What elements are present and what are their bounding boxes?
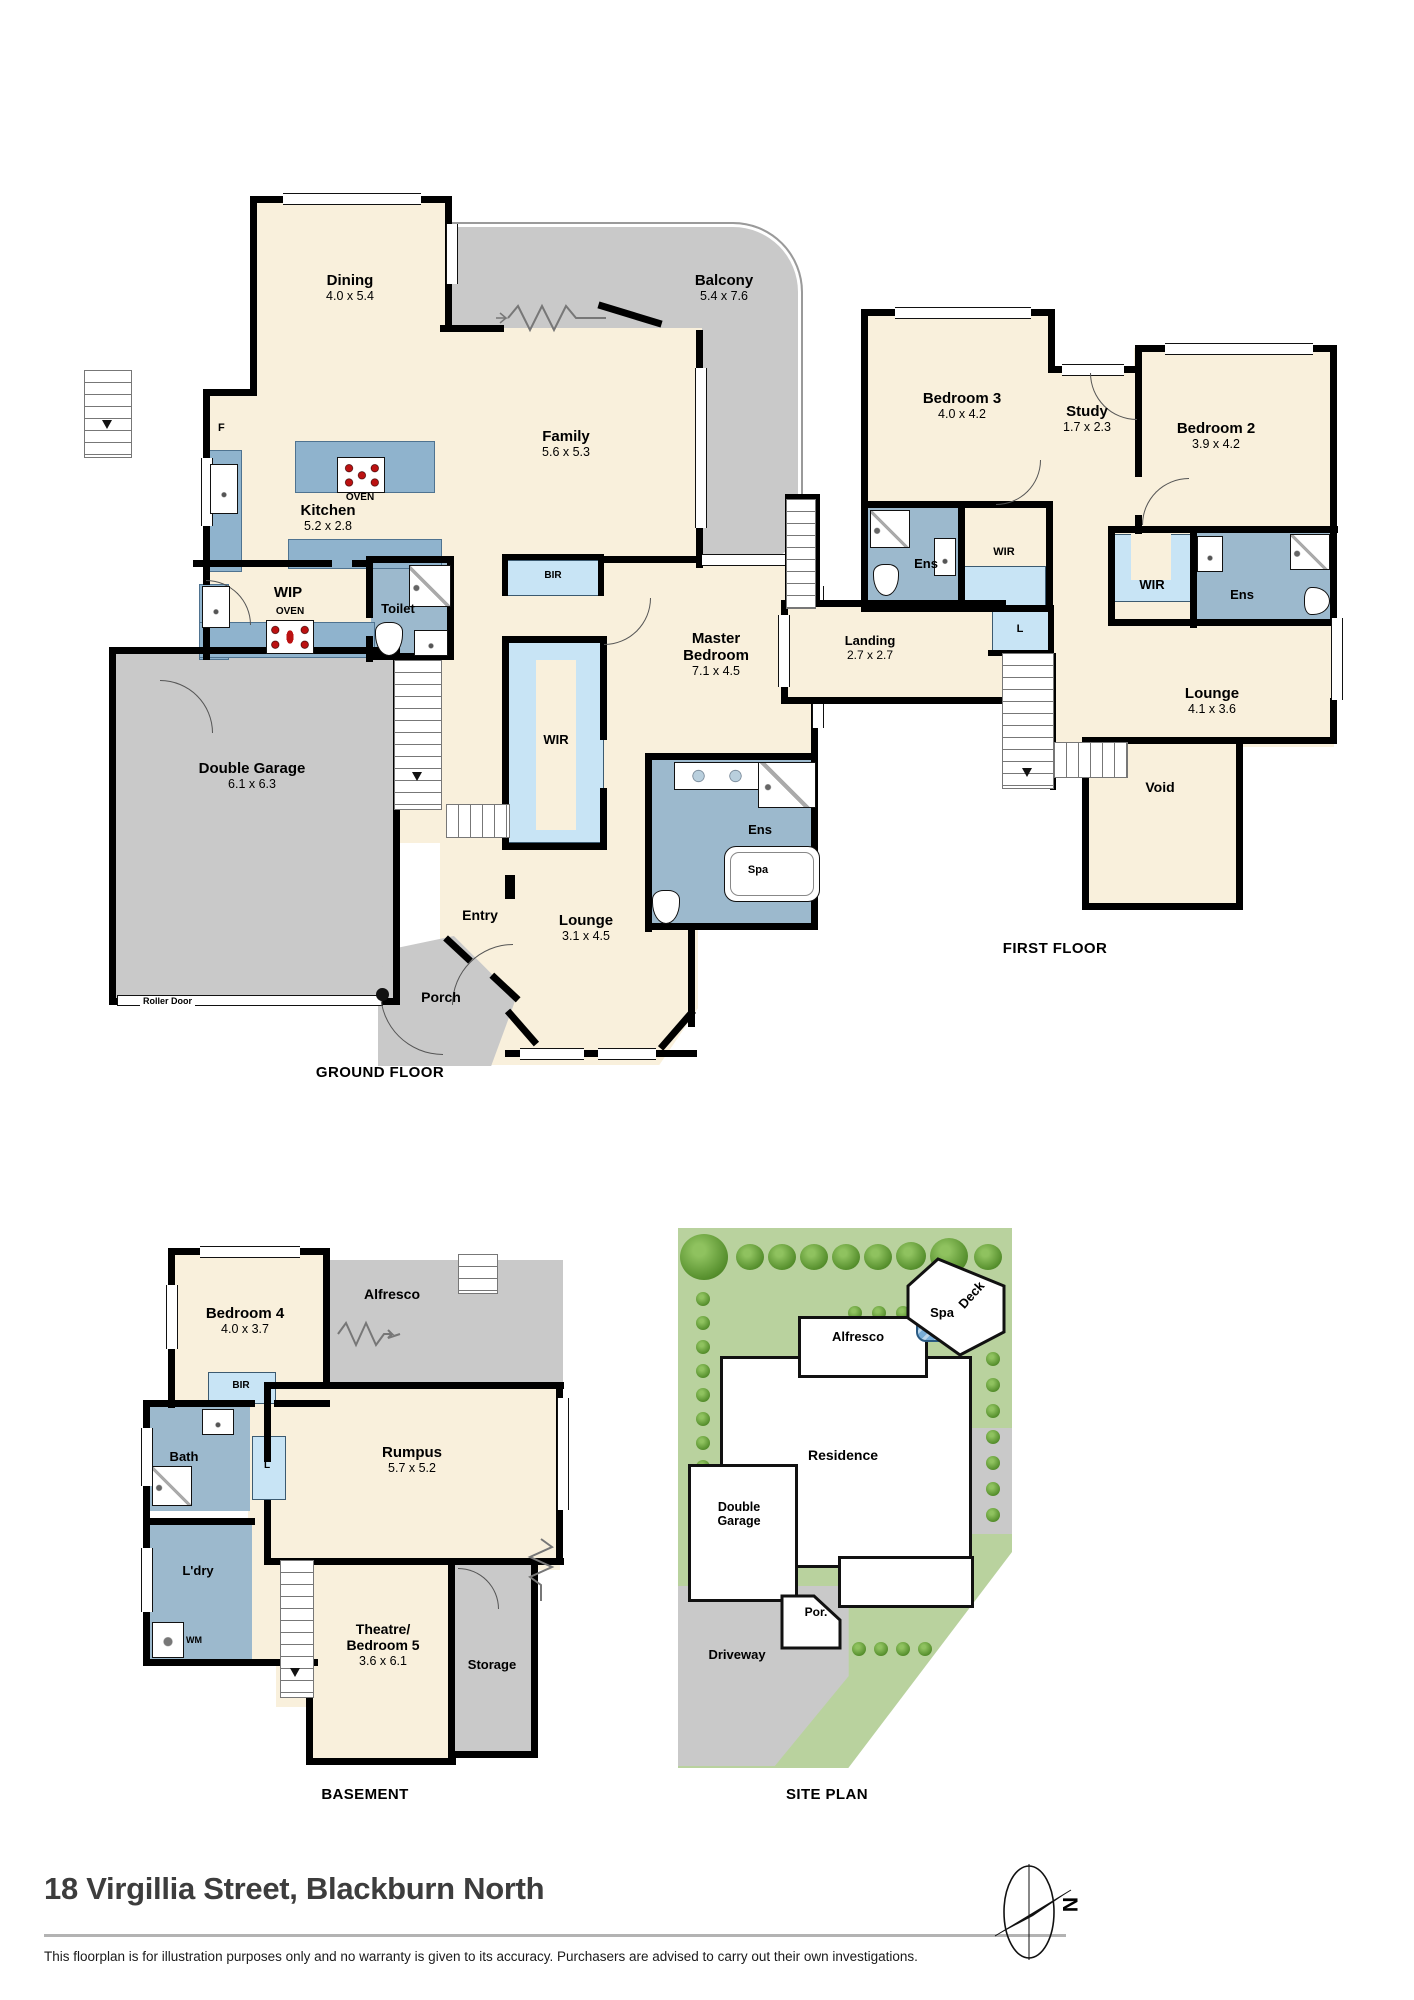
room-name: Lounge [1185,685,1239,702]
shower-icon [870,510,910,548]
floorplan-page: Dining4.0 x 5.4 Balcony5.4 x 7.6 Family5… [0,0,1414,2000]
robe-label: BIR [544,570,561,581]
room-dims: 3.1 x 4.5 [559,929,613,943]
room-name: Lounge [559,912,613,929]
shrub-icon [896,1642,910,1656]
porch-post-icon [376,988,389,1001]
fridge-label: F [218,422,225,434]
room-dims: 3.6 x 6.1 [331,1654,435,1668]
floor-area [268,1388,560,1570]
room-label-laundry: L'dry [182,1564,213,1579]
cooktop-icon [337,457,385,493]
window [557,1398,569,1510]
basin-icon [202,1409,234,1435]
room-name: Master Bedroom [661,630,771,664]
residence-outline [838,1556,974,1608]
room-label-void: Void [1145,780,1174,796]
spa-label: Spa [748,864,768,877]
room-label-lounge: Lounge4.1 x 3.6 [1185,685,1239,716]
room-label-porch: Porch [421,990,461,1006]
wall [502,636,607,643]
room-label-bedroom3: Bedroom 34.0 x 4.2 [923,390,1001,421]
room-name: Porch [421,990,461,1006]
wall [600,788,607,850]
plan-title-basement: BASEMENT [321,1786,408,1803]
wall [958,501,965,612]
opening-zigzag-icon [527,1537,555,1603]
shrub-icon [852,1642,866,1656]
room-name: Theatre/ Bedroom 5 [331,1622,435,1654]
shrub-icon [986,1378,1000,1392]
spa-label: Spa [930,1306,954,1321]
room-name: WIP [274,584,302,601]
wall [448,1558,536,1565]
wm-label: WM [186,1636,202,1646]
room-dims: 2.7 x 2.7 [845,649,896,663]
shower-icon [758,762,816,808]
tree-icon [832,1244,860,1270]
stairs [280,1560,314,1698]
wall [448,1558,455,1758]
wall [323,1248,330,1388]
arrow-down-icon [102,420,112,429]
wall [306,1758,456,1765]
disclaimer-text: This floorplan is for illustration purpo… [44,1950,918,1965]
tree-icon [736,1244,764,1270]
vanity-icon [674,762,760,790]
wall [600,636,607,740]
wall [352,560,373,567]
room-label-bath: Bath [170,1450,199,1465]
wall [264,1382,271,1462]
garage-area [111,653,393,1003]
room-name: Alfresco [364,1287,420,1303]
wall [109,647,400,654]
wall [781,697,1009,704]
room-dims: 7.1 x 4.5 [661,664,771,678]
wall [1108,526,1115,626]
wall [861,309,868,608]
room-name: Dining [326,272,374,289]
room-label-lounge: Lounge3.1 x 4.5 [559,912,613,943]
wall [502,554,508,596]
wall [264,1382,564,1389]
wall [143,1518,255,1525]
wall [1236,737,1243,910]
stairs [786,499,816,609]
wall [1046,501,1053,612]
arrow-down-icon [290,1668,300,1677]
room-label-ens: Ens [748,823,772,838]
room-label-toilet: Toilet [381,602,415,617]
wall [598,554,604,596]
vanity-icon [1197,536,1223,572]
wall [250,196,257,396]
basin-icon [414,630,448,656]
wall [645,753,652,932]
plan-title-ground: GROUND FLOOR [316,1064,444,1081]
window [598,1048,656,1060]
robe-label: WIR [1139,578,1164,593]
room-label-dining: Dining4.0 x 5.4 [326,272,374,303]
room-label-ens: Ens [1230,588,1254,603]
wall [143,1400,255,1407]
shrub-icon [986,1430,1000,1444]
shower-icon [152,1466,192,1506]
window [778,615,790,687]
room-name: Bedroom 2 [1177,420,1255,437]
arrow-down-icon [412,772,422,781]
room-label-bedroom2: Bedroom 23.9 x 4.2 [1177,420,1255,451]
room-label-garage: Double Garage6.1 x 6.3 [197,760,307,791]
compass-north-label: N [1058,1897,1081,1912]
room-name: Double Garage [197,760,307,777]
wall [1082,903,1243,910]
oven-cooktop-icon [266,620,314,654]
wall [264,1500,271,1562]
oven-label: OVEN [276,606,304,617]
room-label-study: Study1.7 x 2.3 [1063,403,1111,434]
shrub-icon [696,1436,710,1450]
wall [1108,619,1338,626]
room-label-theatre: Theatre/ Bedroom 53.6 x 6.1 [331,1622,435,1668]
plan-title-site: SITE PLAN [786,1786,868,1803]
stairs [458,1254,498,1294]
wall [1330,345,1337,620]
wall [109,647,116,1005]
shrub-icon [986,1508,1000,1522]
stairs [446,804,510,838]
window [1331,618,1343,700]
page-title: 18 Virgillia Street, Blackburn North [44,1872,544,1906]
shrub-icon [874,1642,888,1656]
window [520,1048,584,1060]
spa-bath-icon [724,846,820,902]
shrub-icon [696,1412,710,1426]
room-label-balcony: Balcony5.4 x 7.6 [695,272,753,303]
shrub-icon [696,1292,710,1306]
shrub-icon [986,1482,1000,1496]
room-dims: 5.7 x 5.2 [382,1461,442,1475]
room-label-alfresco: Alfresco [364,1287,420,1303]
site-porch-outline [780,1594,842,1650]
room-dims: 4.0 x 5.4 [326,289,374,303]
room-label-entry: Entry [462,908,498,924]
window [895,307,1031,319]
room-name: Rumpus [382,1444,442,1461]
room-dims: 4.0 x 4.2 [923,407,1001,421]
wall [1190,526,1197,628]
driveway-label: Driveway [708,1648,765,1663]
room-name: Study [1063,403,1111,420]
divider [44,1934,1066,1937]
room-name: Bedroom 4 [206,1305,284,1322]
sink-icon [202,586,230,628]
shrub-icon [986,1456,1000,1470]
shrub-icon [918,1642,932,1656]
robe-label: WIR [993,546,1014,559]
wall [645,923,818,930]
room-label-landing: Landing2.7 x 2.7 [845,634,896,662]
tree-icon [800,1244,828,1270]
window [141,1548,153,1612]
room-name: Balcony [695,272,753,289]
wall [788,600,1006,607]
room-dims: 4.1 x 3.6 [1185,702,1239,716]
wall [502,554,604,560]
stairs [394,660,442,810]
shower-icon [1290,534,1330,570]
shrub-icon [986,1404,1000,1418]
stairs [84,370,132,458]
residence-label: Residence [808,1448,878,1464]
sink-icon [210,464,238,514]
tree-icon [864,1244,892,1270]
room-dims: 4.0 x 3.7 [206,1322,284,1336]
shrub-icon [696,1364,710,1378]
site-porch-label: Por. [805,1606,828,1620]
tree-icon [680,1234,728,1280]
room-name: Bedroom 3 [923,390,1001,407]
linen-label: L [1017,623,1024,636]
opening-zigzag-icon [336,1320,402,1348]
wall [645,753,818,760]
window [695,368,707,528]
site-garage-label: Double Garage [704,1500,774,1529]
room-name: Void [1145,780,1174,796]
room-dims: 5.4 x 7.6 [695,289,753,303]
wall [143,1659,255,1666]
wall [505,875,515,899]
room-dims: 1.7 x 2.3 [1063,420,1111,434]
wall [274,1400,330,1407]
robe-walkway [1131,534,1171,580]
window [166,1285,178,1349]
arrow-down-icon [1022,768,1032,777]
opening-zigzag-icon [494,302,608,334]
window [283,193,421,205]
wall [1108,526,1338,533]
wall [448,1751,538,1758]
robe-label: WIR [543,733,568,748]
room-name: Kitchen [300,502,355,519]
room-label-family: Family5.6 x 5.3 [542,428,590,459]
stairs [1054,742,1128,778]
room-label-storage: Storage [468,1658,516,1673]
room-name: Landing [845,634,896,649]
wall [1048,605,1054,659]
shrub-icon [696,1340,710,1354]
deck-outline [904,1256,1008,1358]
room-label-wip: WIP [274,584,302,601]
room-dims: 6.1 x 6.3 [197,777,307,791]
robe-label: BIR [232,1380,249,1391]
room-dims: 3.9 x 4.2 [1177,437,1255,451]
room-label-rumpus: Rumpus5.7 x 5.2 [382,1444,442,1475]
linen-label: L [264,1460,270,1471]
room-label-bedroom4: Bedroom 44.0 x 3.7 [206,1305,284,1336]
site-garage-outline [688,1464,798,1602]
wall [203,389,257,396]
shrub-icon [696,1316,710,1330]
washing-machine-icon [152,1622,184,1658]
room-name: Entry [462,908,498,924]
wall [861,501,1053,508]
room-dims: 5.2 x 2.8 [300,519,355,533]
wall [1243,737,1337,744]
wall [193,560,332,567]
room-dims: 5.6 x 5.3 [542,445,590,459]
plan-title-first: FIRST FLOOR [1003,940,1107,957]
shrub-icon [696,1388,710,1402]
room-label-ens: Ens [914,557,938,572]
wall [502,843,607,850]
room-label-master: Master Bedroom7.1 x 4.5 [661,630,771,678]
roller-door-label: Roller Door [140,997,195,1007]
window [446,224,458,284]
alfresco-label: Alfresco [832,1330,884,1345]
window [200,1246,300,1258]
window [1165,343,1313,355]
oven-label: OVEN [346,492,374,503]
shower-icon [409,565,451,607]
room-label-kitchen: Kitchen5.2 x 2.8 [300,502,355,533]
tree-icon [768,1244,796,1270]
wall [366,556,454,563]
floor-area [788,606,1006,702]
room-name: Family [542,428,590,445]
wall [1048,309,1055,373]
